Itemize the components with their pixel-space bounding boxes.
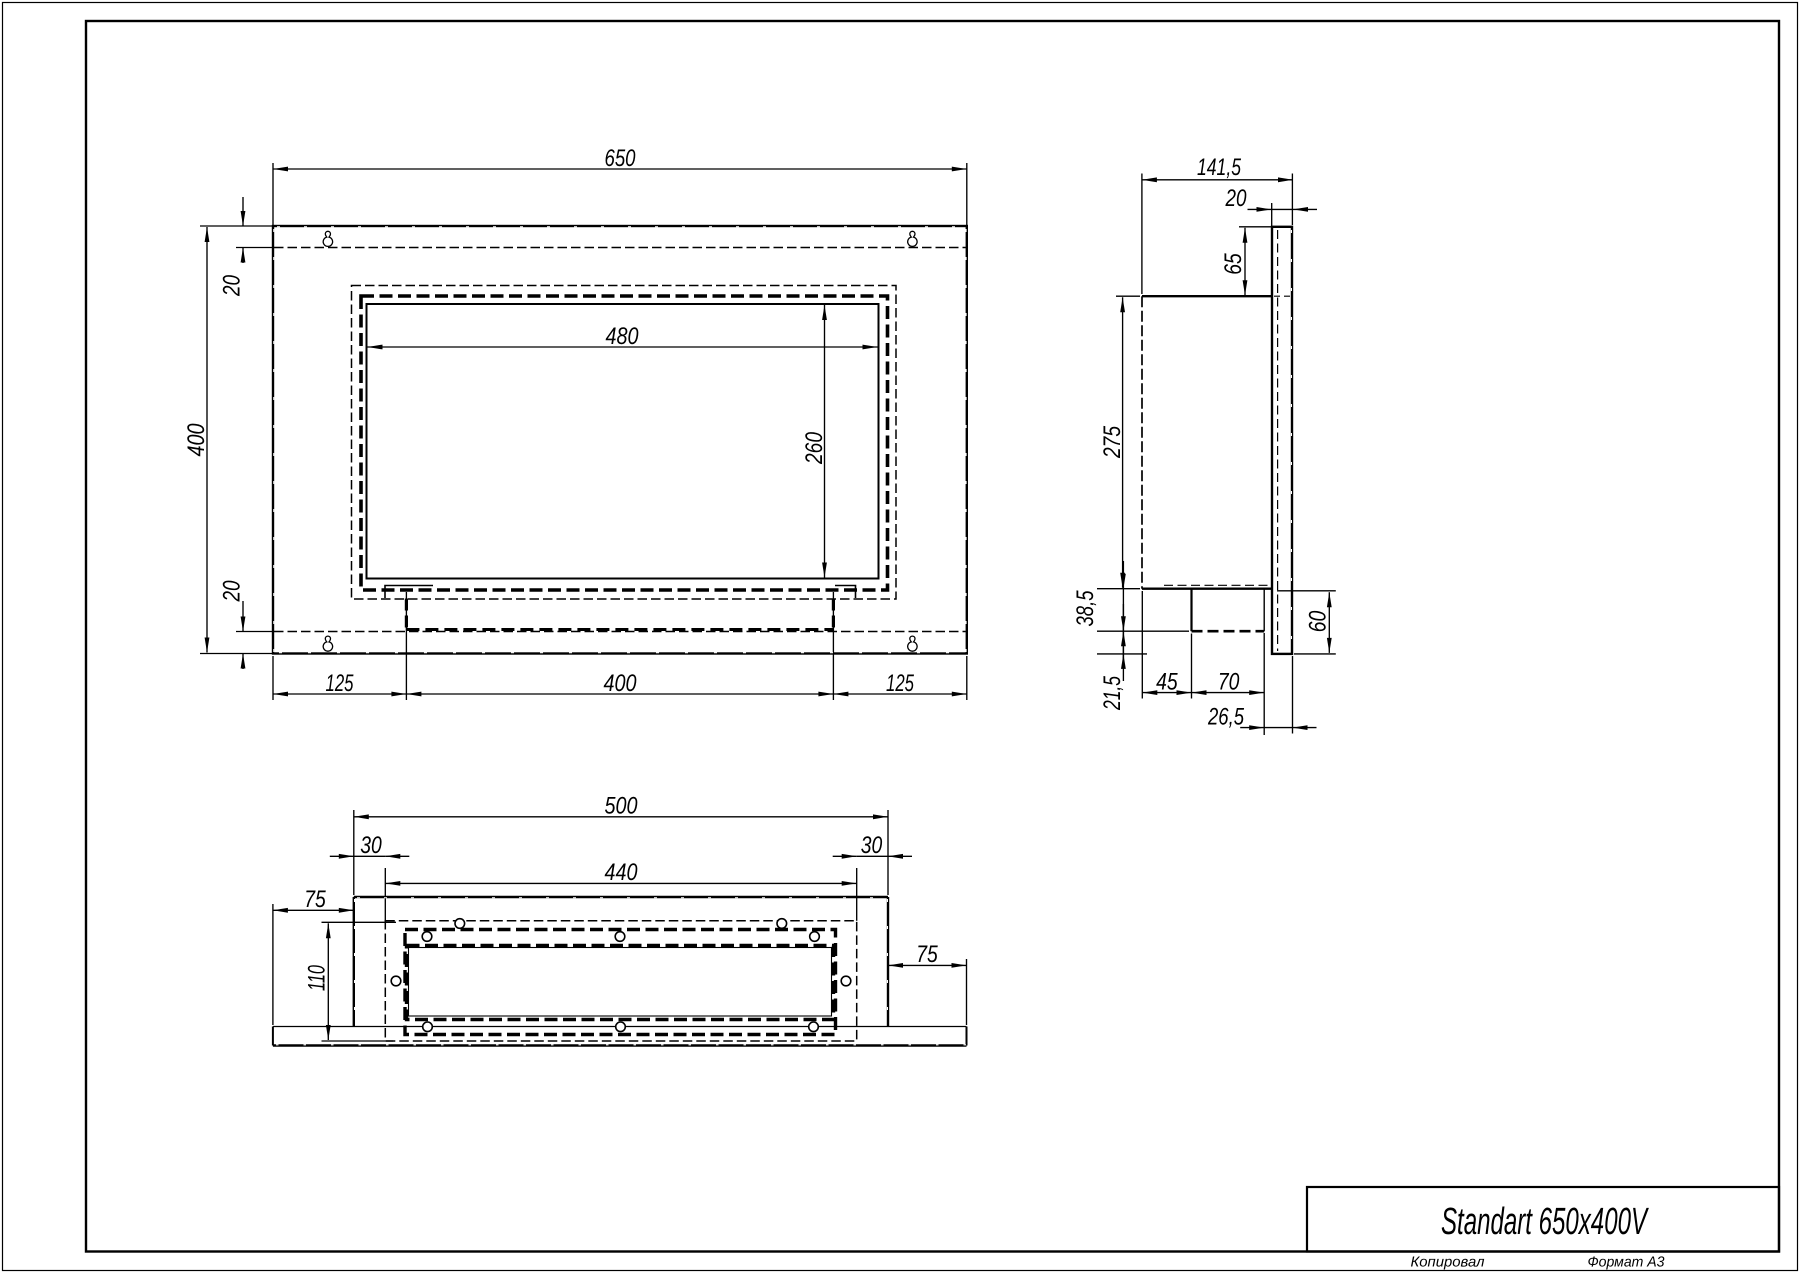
svg-text:480: 480	[606, 323, 640, 350]
svg-text:125: 125	[326, 670, 354, 697]
svg-text:70: 70	[1218, 669, 1240, 696]
svg-text:400: 400	[604, 670, 638, 697]
svg-text:141,5: 141,5	[1197, 154, 1241, 181]
svg-text:Standart 650x400V: Standart 650x400V	[1441, 1201, 1649, 1243]
svg-text:20: 20	[219, 580, 246, 602]
svg-text:125: 125	[886, 670, 914, 697]
svg-text:75: 75	[916, 941, 938, 968]
svg-text:20: 20	[219, 274, 246, 296]
svg-text:Копировал: Копировал	[1411, 1255, 1485, 1271]
svg-text:30: 30	[360, 832, 382, 859]
svg-text:21,5: 21,5	[1099, 676, 1126, 711]
svg-text:26,5: 26,5	[1207, 704, 1244, 731]
svg-text:440: 440	[605, 859, 639, 886]
svg-text:110: 110	[304, 965, 331, 991]
svg-text:60: 60	[1305, 610, 1332, 632]
svg-text:45: 45	[1156, 669, 1178, 696]
svg-text:650: 650	[605, 145, 637, 172]
svg-text:Формат А3: Формат А3	[1588, 1255, 1665, 1271]
svg-text:65: 65	[1220, 253, 1247, 275]
svg-text:400: 400	[183, 423, 210, 457]
svg-text:260: 260	[801, 431, 828, 464]
svg-text:275: 275	[1099, 425, 1126, 458]
svg-text:20: 20	[1225, 185, 1247, 212]
svg-text:30: 30	[861, 832, 883, 859]
svg-text:75: 75	[304, 886, 326, 913]
svg-text:38,5: 38,5	[1072, 590, 1099, 626]
svg-text:500: 500	[605, 793, 639, 820]
